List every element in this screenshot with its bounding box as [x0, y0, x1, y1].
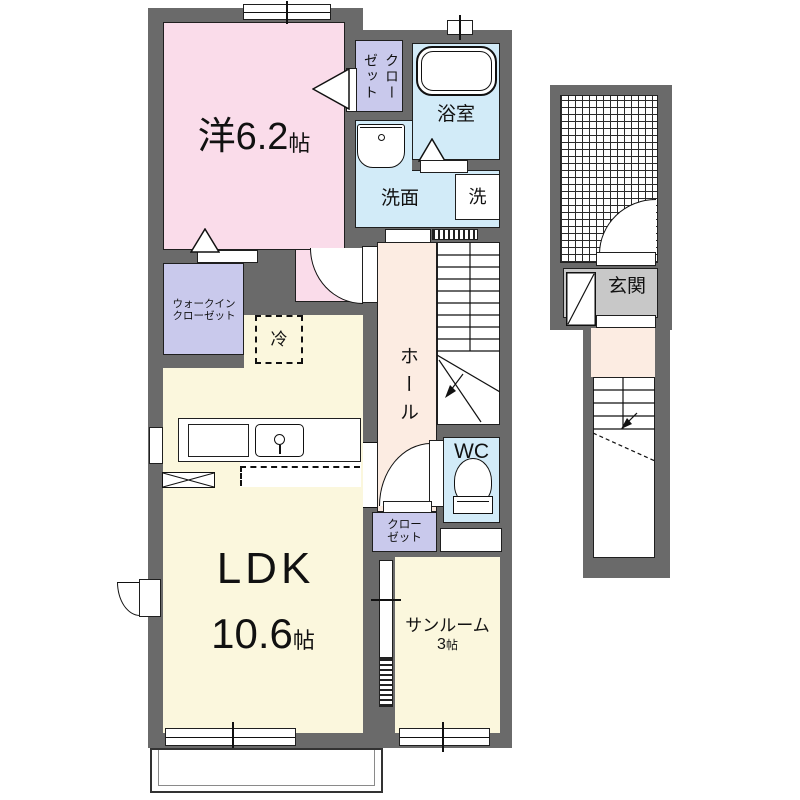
fridge-label: 冷 [271, 330, 288, 350]
partition-tick [371, 599, 401, 601]
label-sunroom: サンルーム 3帖 [395, 608, 500, 662]
counter-icon [440, 528, 502, 552]
counter-dashed-line [240, 466, 360, 468]
counter-dashed-line [240, 466, 242, 486]
window-icon [165, 728, 296, 746]
label-wc: WC [443, 439, 500, 465]
sliding-door-icon [379, 560, 393, 658]
label-ldk: LDK [168, 540, 363, 598]
room-ldk [163, 315, 363, 733]
folding-door-icon [190, 228, 220, 253]
window-tick [286, 1, 288, 24]
sink-icon [357, 124, 405, 168]
sliding-door-hatch [379, 658, 393, 707]
label-washroom: 洗面 [360, 186, 440, 212]
bath-window-tick [459, 15, 461, 40]
folding-door-icon [312, 68, 350, 110]
shoe-cabinet-icon [566, 272, 596, 326]
stove-icon [188, 424, 249, 457]
stairs-icon [437, 242, 500, 425]
door-leaf [596, 252, 656, 266]
door-arc-icon [117, 582, 140, 616]
label-ldk-size: 10.6帖 [163, 606, 363, 662]
western-unit: 帖 [288, 131, 310, 156]
exterior-notch [363, 8, 512, 30]
washer-box: 洗 [455, 174, 500, 220]
stairs-icon [593, 377, 655, 558]
bath-door-bar [420, 160, 468, 173]
wall-niche [149, 427, 163, 464]
door-leaf [362, 246, 378, 303]
balcony [150, 748, 383, 793]
closet-top-col1: クロー [381, 44, 402, 110]
entrance-step [596, 315, 656, 328]
washroom-opening [385, 229, 431, 243]
closet-hall-opening [383, 501, 432, 513]
label-closet-hall: クロー ゼット [372, 514, 437, 550]
label-closet-top: クロー ゼット [356, 44, 402, 110]
label-hall: ホール [379, 288, 435, 488]
closet-top-col2: ゼット [360, 44, 381, 110]
window-tick [442, 722, 444, 752]
toilet-tank [453, 496, 493, 514]
label-wic: ウォークイン クローゼット [162, 294, 246, 326]
bathtub-icon [416, 46, 497, 96]
folding-door-icon [418, 138, 446, 162]
wall-notch [568, 337, 583, 348]
kitchen-sink-icon [255, 424, 304, 457]
hall-ldk-opening [363, 442, 377, 508]
western-size: 洋6.2 [198, 116, 289, 160]
entrance-hall-floor [591, 328, 655, 377]
door-leaf [139, 579, 161, 617]
label-entrance: 玄関 [596, 274, 658, 300]
washer-label: 洗 [469, 187, 487, 208]
floor-plan: 洗 [0, 0, 800, 800]
sliding-door-icon [432, 229, 478, 240]
louver-icon [162, 472, 215, 488]
fridge-box: 冷 [255, 315, 303, 364]
label-bath: 浴室 [412, 102, 500, 128]
label-western-room: 洋6.2帖 [163, 112, 345, 164]
window-icon [399, 728, 490, 746]
